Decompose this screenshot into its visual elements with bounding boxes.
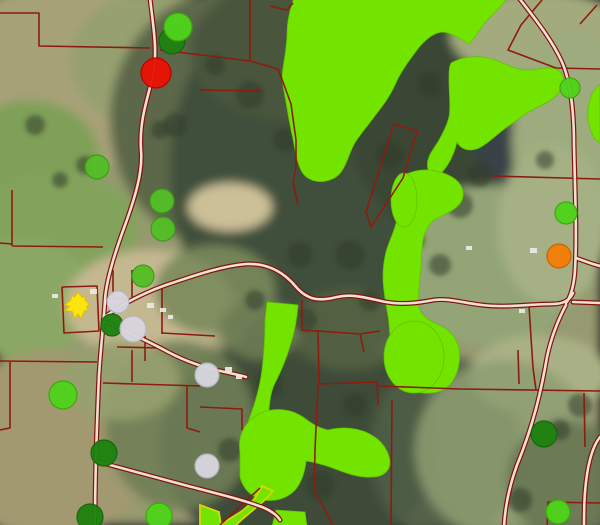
parcel-boundary-line <box>0 361 97 362</box>
marker-gray-2-icon[interactable] <box>120 316 146 342</box>
marker-lime-5-icon[interactable] <box>555 202 577 224</box>
tree-clump <box>52 172 68 188</box>
marker-lime-2-icon[interactable] <box>49 381 77 409</box>
marker-lime-3-icon[interactable] <box>146 503 172 525</box>
marker-darkgreen-3-icon[interactable] <box>91 440 117 466</box>
tree-clump <box>236 81 264 109</box>
tree-clump <box>306 471 334 499</box>
building-footprint <box>519 309 525 313</box>
marker-darkgreen-4-icon[interactable] <box>77 504 103 525</box>
marker-lime-6-icon[interactable] <box>546 500 570 524</box>
building-footprint <box>225 367 232 372</box>
wetland-corridor-lobe[interactable] <box>384 321 444 393</box>
aerial-terrain-patch <box>188 183 272 231</box>
wetland-corridor-west-lobe[interactable] <box>391 173 417 227</box>
marker-darkgreen-5-icon[interactable] <box>531 421 557 447</box>
building-footprint <box>90 289 97 294</box>
parcel-boundary-line <box>200 90 262 91</box>
tree-clump <box>245 290 265 310</box>
building-footprint <box>466 246 472 250</box>
road-east-west-east-stub <box>573 302 600 303</box>
building-footprint <box>236 375 242 379</box>
parcel-boundary-line <box>518 350 519 384</box>
tree-clump <box>568 393 592 417</box>
marker-green-3-icon[interactable] <box>151 217 175 241</box>
building-footprint <box>52 294 58 298</box>
tree-clump <box>25 115 45 135</box>
tree-clump <box>335 240 365 270</box>
aerial-terrain-patch <box>60 340 180 420</box>
parcel-boundary-line <box>377 382 378 405</box>
tree-clump <box>151 121 169 139</box>
marker-red-1-icon[interactable] <box>141 58 171 88</box>
marker-green-4-icon[interactable] <box>132 265 154 287</box>
marker-gray-3-icon[interactable] <box>195 363 219 387</box>
marker-green-1-icon[interactable] <box>85 155 109 179</box>
map-viewport <box>0 0 600 525</box>
building-footprint <box>160 308 166 312</box>
tree-clump <box>343 393 367 417</box>
building-footprint <box>147 303 154 308</box>
marker-lime-4-icon[interactable] <box>560 78 580 98</box>
map-canvas[interactable] <box>0 0 600 525</box>
marker-orange-1-icon[interactable] <box>547 244 571 268</box>
building-footprint <box>530 248 537 253</box>
tree-clump <box>468 163 492 187</box>
tree-clump <box>536 151 554 169</box>
marker-green-2-icon[interactable] <box>150 189 174 213</box>
marker-darkgreen-2-icon[interactable] <box>101 314 123 336</box>
parcel-boundary-line <box>391 400 392 525</box>
marker-gray-4-icon[interactable] <box>195 454 219 478</box>
tree-clump <box>417 72 443 98</box>
tree-clump <box>429 254 451 276</box>
marker-gray-1-icon[interactable] <box>107 291 129 313</box>
tree-clump <box>218 438 242 462</box>
building-footprint <box>168 315 173 319</box>
marker-lime-1-icon[interactable] <box>164 13 192 41</box>
parcel-boundary-line <box>584 393 585 447</box>
tree-clump <box>287 242 313 268</box>
